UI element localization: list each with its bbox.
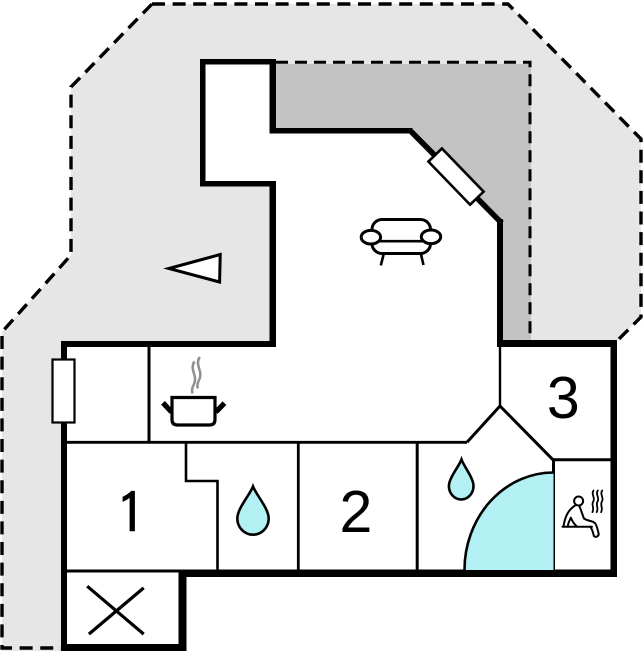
svg-text:2: 2 [339, 479, 372, 545]
svg-text:3: 3 [547, 365, 580, 431]
